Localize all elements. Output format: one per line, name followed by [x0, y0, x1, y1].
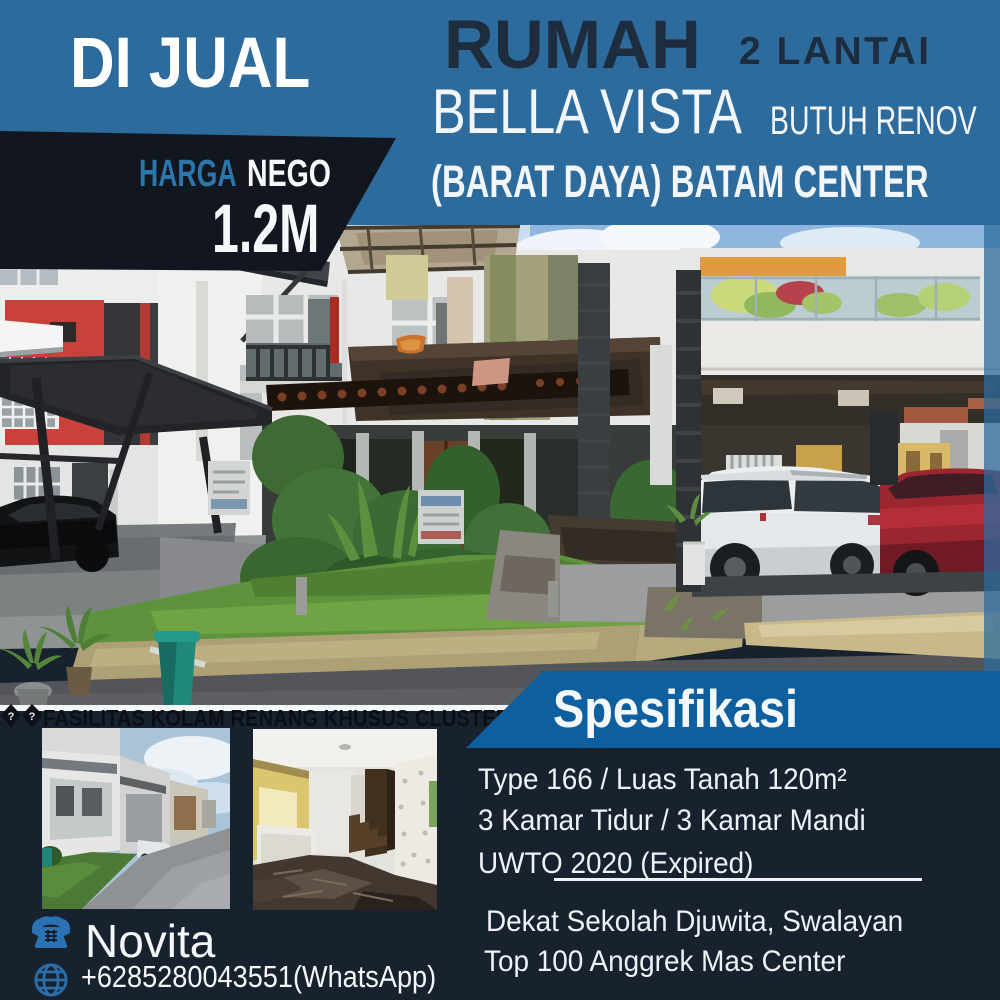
svg-text:?: ? [8, 711, 15, 723]
svg-text:?: ? [29, 711, 36, 723]
